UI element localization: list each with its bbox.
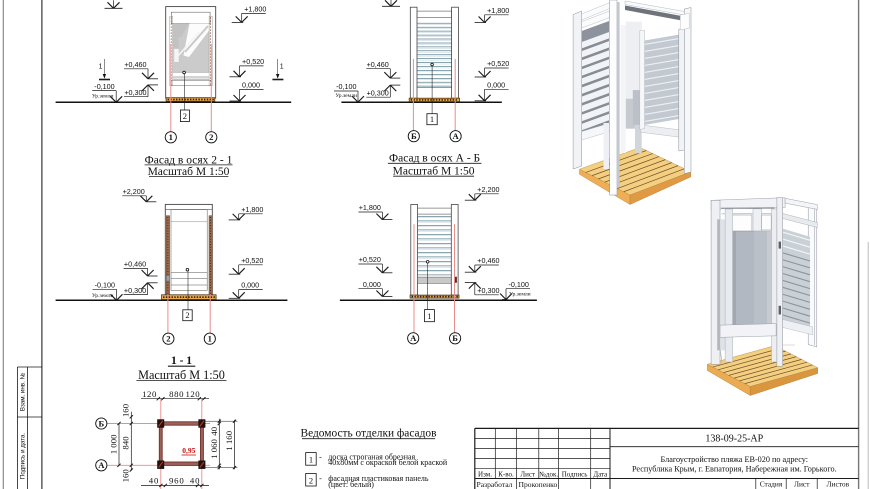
svg-text:+1,800: +1,800 [241, 205, 263, 214]
svg-text:Ур.земли: Ур.земли [92, 94, 114, 100]
svg-text:(цвет: белый): (цвет: белый) [328, 480, 374, 489]
svg-text:+1,800: +1,800 [244, 5, 266, 14]
svg-text:+0,460: +0,460 [124, 60, 146, 69]
svg-text:960: 960 [169, 476, 185, 486]
svg-text:1: 1 [309, 455, 313, 465]
svg-text:+0,460: +0,460 [124, 260, 146, 269]
svg-text:+0,520: +0,520 [359, 255, 381, 264]
svg-text:+1,800: +1,800 [487, 6, 509, 15]
svg-text:2: 2 [183, 111, 187, 121]
svg-text:Лист: Лист [520, 471, 535, 479]
svg-text:К-во.: К-во. [498, 471, 514, 479]
svg-text:-: - [319, 452, 322, 461]
svg-text:1 - 1: 1 - 1 [171, 355, 192, 367]
svg-text:1 060: 1 060 [209, 439, 219, 459]
svg-text:Прокопенко: Прокопенко [519, 480, 558, 489]
svg-text:+0,460: +0,460 [367, 60, 389, 69]
svg-text:1: 1 [99, 64, 103, 71]
svg-text:0,000: 0,000 [487, 81, 505, 90]
svg-text:0,000: 0,000 [363, 280, 381, 289]
svg-text:Взам. инв. №: Взам. инв. № [20, 372, 27, 411]
svg-text:Б: Б [452, 333, 458, 343]
svg-text:1: 1 [169, 132, 173, 142]
svg-text:Изм.: Изм. [478, 471, 492, 479]
svg-text:2: 2 [166, 334, 170, 344]
svg-text:40: 40 [209, 426, 219, 435]
svg-text:-0,100: -0,100 [336, 82, 356, 91]
svg-text:2: 2 [185, 310, 189, 320]
svg-text:1 000: 1 000 [108, 434, 118, 454]
svg-text:А: А [452, 131, 459, 141]
svg-text:160: 160 [121, 403, 131, 417]
svg-text:40: 40 [190, 476, 200, 486]
svg-text:Фасад в осях А - Б: Фасад в осях А - Б [389, 153, 480, 165]
svg-text:-: - [319, 474, 322, 483]
svg-text:0,000: 0,000 [241, 281, 259, 290]
svg-text:-0,100: -0,100 [95, 281, 115, 290]
svg-text:Разработал: Разработал [477, 480, 513, 489]
svg-text:Ведомость отделки фасадов: Ведомость отделки фасадов [301, 428, 437, 440]
svg-text:+0,520: +0,520 [487, 59, 509, 68]
svg-text:+0,460: +0,460 [477, 256, 499, 265]
svg-text:Лист: Лист [794, 480, 810, 489]
svg-text:880: 880 [169, 389, 184, 399]
svg-text:1: 1 [427, 311, 431, 321]
svg-text:А: А [98, 460, 105, 470]
svg-text:+0,520: +0,520 [241, 256, 263, 265]
svg-text:120: 120 [142, 389, 157, 399]
svg-text:Ур.земли: Ур.земли [335, 93, 357, 99]
svg-text:0,000: 0,000 [242, 81, 260, 90]
svg-text:1: 1 [280, 64, 284, 71]
svg-text:40: 40 [149, 476, 159, 486]
svg-text:Республика Крым, г. Евпатори: Республика Крым, г. Евпатория, Набережна… [632, 464, 837, 473]
svg-text:Стадия: Стадия [760, 480, 783, 489]
svg-text:+0,520: +0,520 [242, 57, 264, 66]
svg-text:Масштаб М 1:50: Масштаб М 1:50 [138, 368, 225, 382]
svg-text:Ур.земли: Ур.земли [92, 293, 114, 299]
svg-text:Дата: Дата [593, 471, 608, 479]
svg-text:+2,200: +2,200 [123, 187, 145, 196]
svg-text:138-09-25-АР: 138-09-25-АР [705, 433, 763, 444]
svg-text:Листов: Листов [827, 480, 850, 489]
svg-text:Б: Б [98, 418, 104, 428]
svg-text:Благоустройство пляжа ЕВ-020 п: Благоустройство пляжа ЕВ-020 по адресу: [661, 455, 809, 464]
svg-text:1: 1 [208, 334, 212, 344]
svg-text:№док.: №док. [539, 471, 558, 479]
svg-text:120: 120 [185, 389, 200, 399]
svg-text:-0,100: -0,100 [94, 82, 114, 91]
svg-text:40х80мм с окраской белой краск: 40х80мм с окраской белой краской [328, 458, 448, 467]
svg-text:Подпись: Подпись [562, 471, 588, 479]
svg-text:А: А [410, 333, 417, 343]
svg-text:Ур.земли: Ур.земли [509, 292, 531, 298]
svg-text:840: 840 [121, 436, 131, 450]
svg-text:1: 1 [430, 114, 434, 124]
svg-text:Б: Б [411, 131, 417, 141]
svg-text:1 160: 1 160 [224, 430, 234, 450]
svg-text:+0,300: +0,300 [477, 286, 499, 295]
svg-text:Масштаб М 1:50: Масштаб М 1:50 [148, 166, 230, 178]
svg-text:2: 2 [309, 475, 313, 485]
svg-text:0,95: 0,95 [182, 446, 195, 455]
svg-text:+1,800: +1,800 [359, 203, 381, 212]
svg-text:+2,200: +2,200 [477, 185, 499, 194]
svg-text:160: 160 [121, 469, 131, 483]
svg-text:2: 2 [209, 132, 213, 142]
svg-text:Подпись и дата.: Подпись и дата. [20, 433, 27, 480]
svg-text:-0,100: -0,100 [509, 280, 529, 289]
